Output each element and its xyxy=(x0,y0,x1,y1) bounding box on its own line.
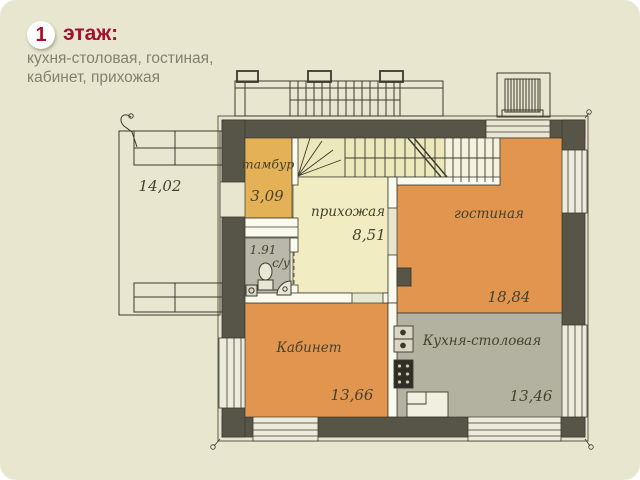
terrace-outline xyxy=(119,114,222,315)
tambur-area-label: 3,09 xyxy=(250,187,283,205)
chimney-block xyxy=(497,73,550,117)
toilet-icon xyxy=(258,263,273,290)
floor-number-badge: 1 xyxy=(27,21,55,49)
room-list-line2: кабинет, прихожая xyxy=(27,68,257,87)
counter xyxy=(407,392,448,417)
washer-icon xyxy=(246,285,257,296)
room-list-line1: кухня-столовая, гостиная, xyxy=(27,49,257,68)
living-area-label: 18,84 xyxy=(488,288,531,306)
stove-icon xyxy=(394,360,413,388)
terrace-area-label: 14,02 xyxy=(139,177,182,195)
living-name-label: гостиная xyxy=(454,206,524,222)
bathroom-name-label: с/у xyxy=(272,256,290,270)
kitchen-sink-icon xyxy=(394,326,413,352)
porch xyxy=(235,71,443,116)
hallway-name-label: прихожая xyxy=(311,204,385,220)
tambur-name-label: тамбур xyxy=(242,157,295,172)
hallway-area-label: 8,51 xyxy=(352,226,385,244)
office-area-label: 13,66 xyxy=(331,386,374,404)
entry-door-opening xyxy=(220,182,246,217)
kitchen-name-label: Кухня-столовая xyxy=(423,333,541,349)
floorplan-page: 1 этаж: кухня-столовая, гостиная, кабине… xyxy=(0,0,640,480)
stairs-lower-flight xyxy=(293,138,445,177)
office-name-label: Кабинет xyxy=(276,340,341,356)
page-title: этаж: xyxy=(63,22,118,46)
room-tambur xyxy=(245,138,292,218)
kitchen-area-label: 13,46 xyxy=(510,387,553,405)
bathroom-area-label: 1.91 xyxy=(250,243,277,257)
flue-block xyxy=(397,268,411,286)
